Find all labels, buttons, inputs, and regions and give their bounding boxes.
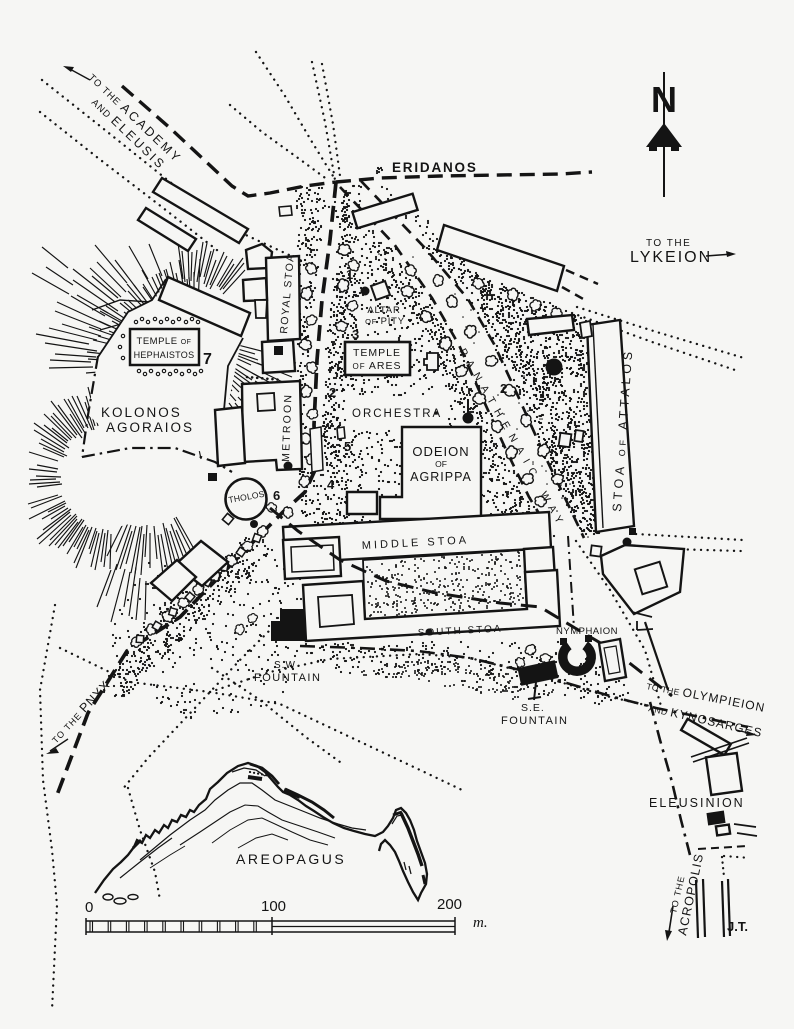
svg-text:METROON: METROON — [280, 393, 294, 462]
svg-text:AREOPAGUS: AREOPAGUS — [236, 851, 346, 867]
svg-text:TEMPLE: TEMPLE — [353, 347, 401, 359]
svg-text:NYMPHAION: NYMPHAION — [556, 626, 618, 637]
svg-text:100: 100 — [261, 898, 286, 915]
svg-text:OF: OF — [435, 459, 447, 469]
svg-text:6: 6 — [273, 488, 280, 503]
svg-text:OF PITY: OF PITY — [365, 316, 405, 327]
svg-text:FOUNTAIN: FOUNTAIN — [501, 715, 568, 727]
svg-text:m.: m. — [473, 915, 488, 931]
svg-text:2: 2 — [329, 385, 336, 400]
svg-text:OF ARES: OF ARES — [352, 360, 401, 372]
svg-text:ELEUSINION: ELEUSINION — [649, 796, 745, 810]
svg-text:ALTAR: ALTAR — [367, 305, 400, 316]
svg-text:3: 3 — [352, 327, 359, 342]
svg-text:S.W: S.W — [274, 660, 296, 671]
svg-text:ERIDANOS: ERIDANOS — [392, 160, 478, 175]
svg-text:AGORAIOS: AGORAIOS — [106, 420, 194, 435]
svg-text:200: 200 — [437, 896, 462, 913]
svg-text:4: 4 — [327, 477, 335, 492]
svg-text:0: 0 — [85, 899, 93, 916]
svg-text:N: N — [651, 79, 677, 120]
svg-text:J.T.: J.T. — [727, 919, 748, 934]
svg-text:HEPHAISTOS: HEPHAISTOS — [134, 350, 195, 360]
svg-text:2: 2 — [500, 381, 507, 396]
svg-text:5: 5 — [344, 439, 351, 454]
svg-text:7: 7 — [203, 351, 212, 368]
svg-text:KOLONOS: KOLONOS — [101, 405, 182, 420]
svg-text:ORCHESTRA: ORCHESTRA — [352, 408, 442, 420]
svg-text:LYKEION: LYKEION — [630, 249, 712, 266]
svg-text:ODEION: ODEION — [412, 444, 469, 459]
svg-text:TO THE: TO THE — [646, 238, 691, 249]
svg-text:FOUNTAIN: FOUNTAIN — [254, 672, 321, 684]
svg-text:AGRIPPA: AGRIPPA — [410, 470, 472, 484]
svg-text:S.E.: S.E. — [521, 702, 545, 714]
svg-text:1: 1 — [346, 267, 353, 282]
